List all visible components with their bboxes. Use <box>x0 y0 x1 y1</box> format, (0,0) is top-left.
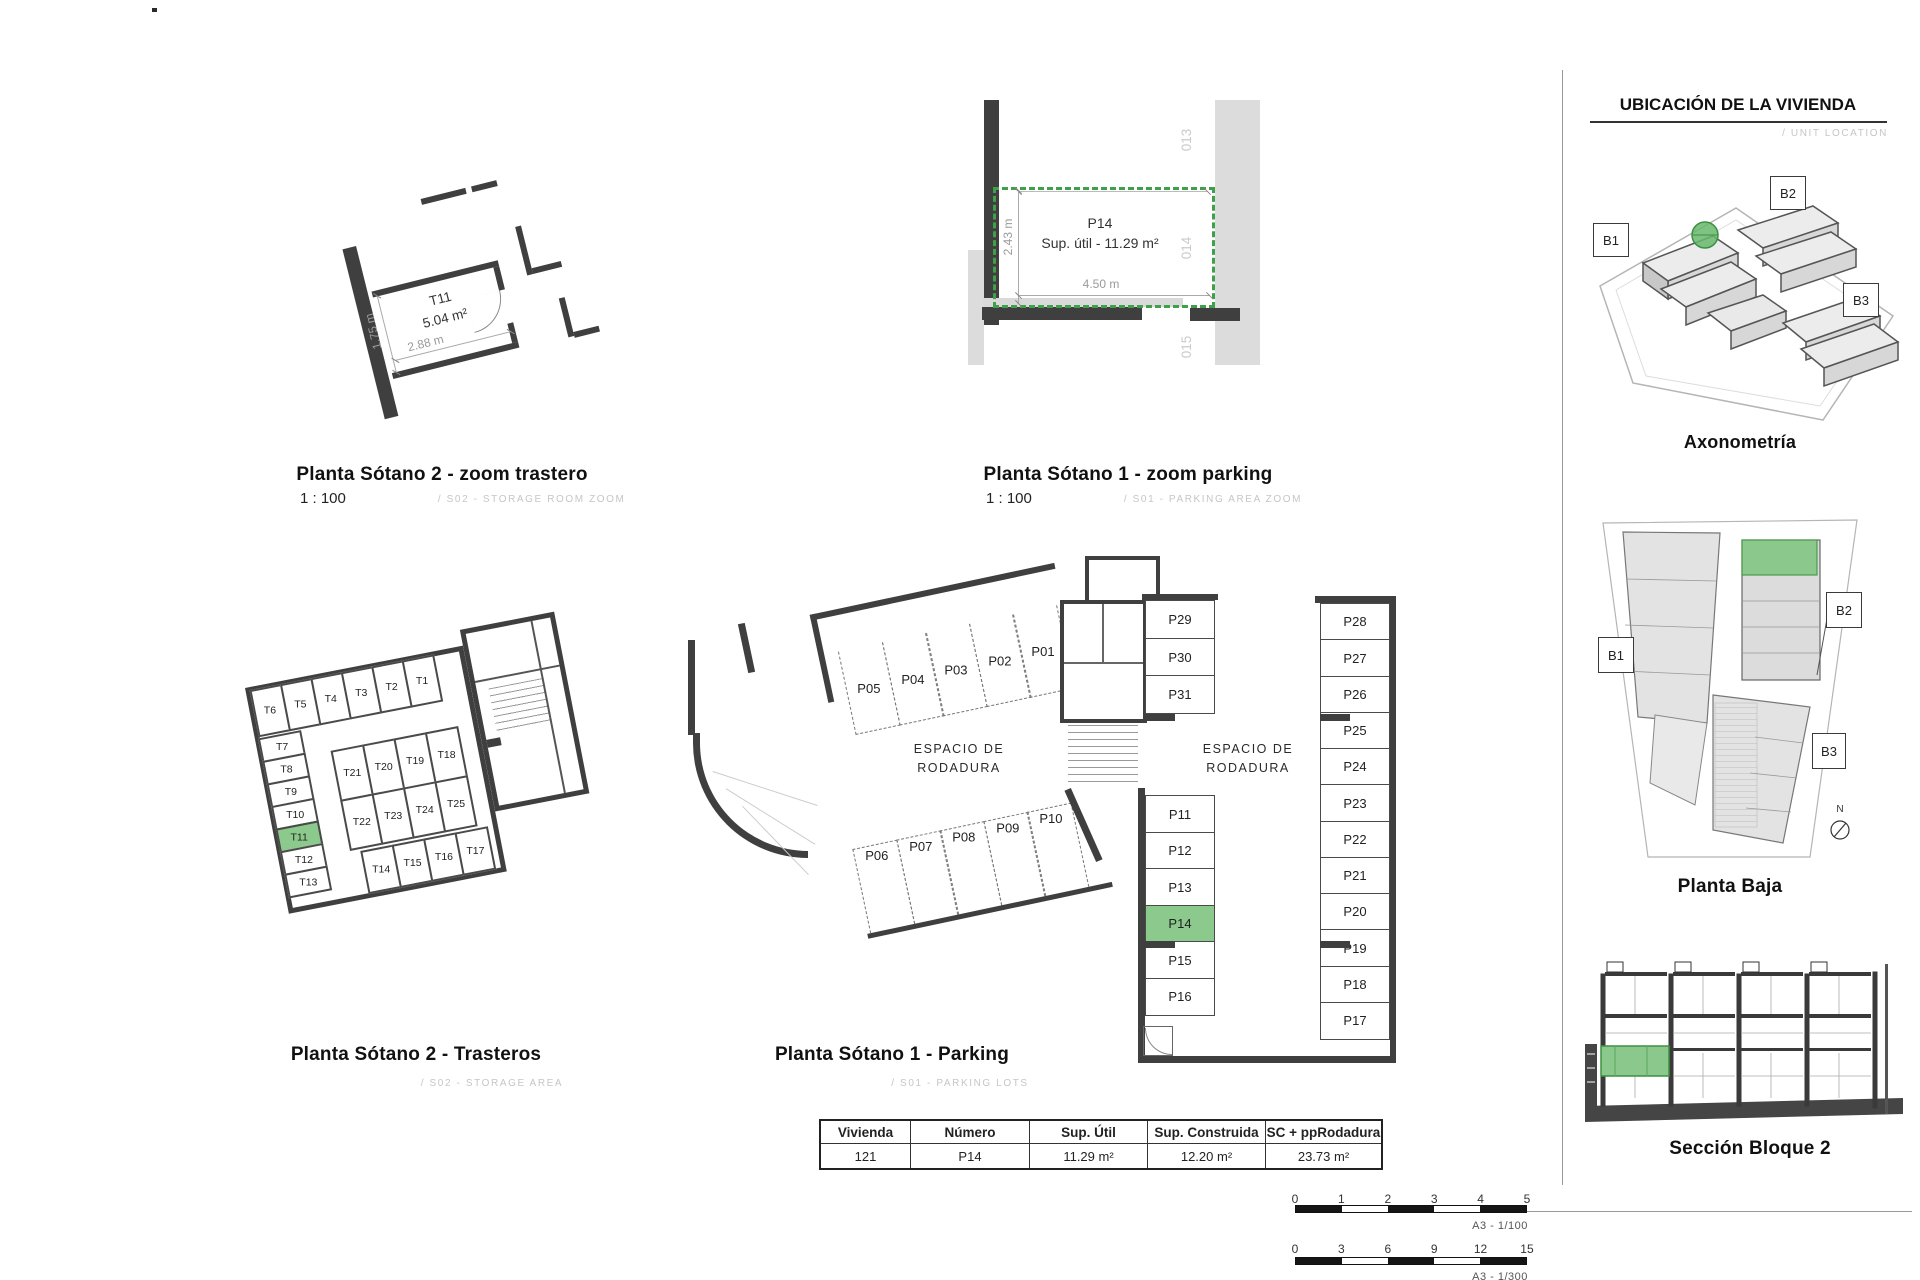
scalebar-segment <box>1296 1258 1342 1264</box>
door-room <box>1143 1026 1173 1056</box>
scalebar-segment <box>1342 1258 1388 1264</box>
detail-parking-caption: Planta Sótano 1 - zoom parking 1 : 100 /… <box>928 464 1328 507</box>
wall-segment <box>486 737 501 748</box>
scalebar-2-ticks: 03691215 <box>1283 1240 1539 1258</box>
location-header: UBICACIÓN DE LA VIVIENDA <box>1588 95 1888 115</box>
parking-stall: P28 <box>1320 603 1390 641</box>
table-header-row: ViviendaNúmeroSup. ÚtilSup. ConstruidaSC… <box>821 1121 1381 1144</box>
parking-stall: P20 <box>1320 893 1390 931</box>
adjacent-unit-label: 015 <box>1157 335 1217 359</box>
area-label: ESPACIO DE RODADURA <box>1178 740 1318 779</box>
table-value-cell: 23.73 m² <box>1265 1144 1381 1168</box>
block-label-b3: B3 <box>1843 283 1879 317</box>
stair-hatch <box>1068 725 1138 785</box>
scalebar-segment <box>1296 1206 1342 1212</box>
parking-stall: P19 <box>1320 929 1390 967</box>
detail-trastero-drawing: T11 5.04 m² 1.75 m 2.88 m <box>292 180 678 485</box>
parking-stall: P26 <box>1320 676 1390 714</box>
tick-number: 12 <box>1469 1240 1493 1258</box>
tick-number: 15 <box>1515 1240 1539 1258</box>
partition-line <box>475 665 560 683</box>
wall-segment <box>688 640 695 735</box>
wall-segment <box>738 623 755 673</box>
wall-segment <box>810 614 835 703</box>
space-area: Sup. útil - 11.29 m² <box>1015 233 1185 253</box>
drawing-sheet: T11 5.04 m² 1.75 m 2.88 m Planta Sótano … <box>0 0 1920 1280</box>
parking-col-inner-lower: P11P12P13P14P15P16 <box>1145 795 1215 1016</box>
tick-number: 0 <box>1283 1240 1307 1258</box>
plan-trasteros-title: Planta Sótano 2 - Trasteros <box>216 1044 616 1066</box>
scalebar-segment <box>1388 1258 1434 1264</box>
plan-trasteros-drawing: T6T5T4T3T2T1 T7T8T9T10T11T12T13 T21T20T1… <box>245 619 648 943</box>
block-label-b1: B1 <box>1593 223 1629 257</box>
wall-segment <box>1315 596 1396 603</box>
dim-width: 4.50 m <box>1071 277 1131 291</box>
tick-number: 9 <box>1422 1240 1446 1258</box>
wall-stub <box>1320 941 1350 948</box>
block-label-b2: B2 <box>1826 592 1862 628</box>
table-value-cell: 12.20 m² <box>1147 1144 1265 1168</box>
wall-stub <box>1320 714 1350 721</box>
wall-stub <box>1145 714 1175 721</box>
compass-n-label: N <box>1826 804 1854 815</box>
block-label-b1: B1 <box>1598 637 1634 673</box>
space-label: P14 Sup. útil - 11.29 m² <box>1015 213 1185 254</box>
parking-stall: P13 <box>1145 868 1215 906</box>
parking-stall: P23 <box>1320 784 1390 822</box>
wall-segment <box>1390 596 1396 1062</box>
parking-stall: P16 <box>1145 978 1215 1016</box>
location-header-sub: / UNIT LOCATION <box>1588 128 1888 139</box>
wall-segment <box>471 180 498 192</box>
detail-trastero-caption: Planta Sótano 2 - zoom trastero 1 : 100 … <box>242 464 642 507</box>
plan-trasteros-code: / S02 - STORAGE AREA <box>292 1078 692 1089</box>
detail-scale: 1 : 100 <box>300 490 346 507</box>
table-value-cell: 11.29 m² <box>1029 1144 1147 1168</box>
table-header-cell: Número <box>910 1121 1029 1144</box>
scalebar-segment <box>1480 1206 1526 1212</box>
detail-scale: 1 : 100 <box>986 490 1032 507</box>
extension-line <box>1018 191 1208 192</box>
wall-segment <box>559 297 574 337</box>
wall-segment <box>573 326 600 338</box>
parking-stall: P18 <box>1320 966 1390 1004</box>
table-header-cell: Sup. Útil <box>1029 1121 1147 1144</box>
scalebar-1-label: A3 - 1/100 <box>1430 1220 1570 1232</box>
parking-stall: P12 <box>1145 832 1215 870</box>
partition-line <box>1102 604 1104 664</box>
wall-segment <box>1138 1056 1396 1063</box>
area-label: ESPACIO DE RODADURA <box>889 740 1029 779</box>
space-id: P14 <box>1015 213 1185 233</box>
table-value-row: 121P1411.29 m²12.20 m²23.73 m² <box>821 1144 1381 1168</box>
parking-stall: P27 <box>1320 639 1390 677</box>
scalebar-2 <box>1295 1257 1527 1265</box>
corridor-band <box>1215 100 1260 365</box>
parking-col-right: P28P27P26P25P24P23P22P21P20P19P18P17 <box>1320 603 1390 1040</box>
table-value-cell: P14 <box>910 1144 1029 1168</box>
wall-segment <box>421 188 467 205</box>
section-title: Sección Bloque 2 <box>1585 1138 1915 1160</box>
parking-row-top: P05P04P03P02P01 <box>838 605 1075 735</box>
table-header-cell: Vivienda <box>821 1121 910 1144</box>
scalebar-2-label: A3 - 1/300 <box>1430 1271 1570 1280</box>
wall-segment <box>1190 308 1240 321</box>
table-header-cell: Sup. Construida <box>1147 1121 1265 1144</box>
scalebar-segment <box>1434 1206 1480 1212</box>
plan-parking-title: Planta Sótano 1 - Parking <box>692 1044 1092 1066</box>
corner-dot <box>152 8 157 12</box>
scalebar-extension-line <box>1527 1211 1912 1212</box>
adjacent-unit-label: 013 <box>1157 128 1217 152</box>
table-header-cell: SC + ppRodadura <box>1265 1121 1381 1144</box>
planta-baja-view <box>1595 515 1915 875</box>
wall-segment <box>532 261 563 274</box>
wall-stub <box>1145 941 1175 948</box>
parking-stall: P11 <box>1145 795 1215 833</box>
parking-stall: P17 <box>1320 1002 1390 1040</box>
planta-baja-title: Planta Baja <box>1580 876 1880 898</box>
scalebar-segment <box>1342 1206 1388 1212</box>
block-label-b3: B3 <box>1812 733 1846 769</box>
parking-stall: P21 <box>1320 857 1390 895</box>
detail-title: Planta Sótano 1 - zoom parking <box>928 464 1328 486</box>
block-label-b2: B2 <box>1770 176 1806 210</box>
door-arc <box>1145 1028 1172 1055</box>
summary-table: ViviendaNúmeroSup. ÚtilSup. ConstruidaSC… <box>819 1119 1383 1170</box>
parking-stall: P14 <box>1145 905 1215 943</box>
parking-stall: P29 <box>1145 600 1215 639</box>
parking-col-inner-upper: P29P30P31 <box>1145 600 1215 714</box>
detail-code: / S02 - STORAGE ROOM ZOOM <box>438 494 626 505</box>
partition-line <box>1064 662 1143 664</box>
wall-segment <box>515 226 533 276</box>
wall-segment <box>810 563 1056 621</box>
dimension-line <box>1018 191 1019 303</box>
plan-parking-drawing: P05P04P03P02P01 P06P07P08P09P10 ESPACIO … <box>640 548 1430 1093</box>
scalebar-segment <box>1480 1258 1526 1264</box>
wall-segment <box>1138 788 1145 1060</box>
parking-stall: P24 <box>1320 748 1390 786</box>
detail-parking-drawing: 013 014 015 P14 Sup. útil - 11.29 m² 2.4… <box>940 85 1290 375</box>
scalebar-1 <box>1295 1205 1527 1213</box>
parking-stall: P31 <box>1145 675 1215 714</box>
dimension-line <box>1018 295 1210 296</box>
scalebar-segment <box>1388 1206 1434 1212</box>
dim-depth: 2.43 m <box>1001 207 1015 267</box>
core-room <box>1060 600 1147 723</box>
axonometric-title: Axonometría <box>1590 432 1890 453</box>
detail-title: Planta Sótano 2 - zoom trastero <box>242 464 642 486</box>
table-value-cell: 121 <box>821 1144 910 1168</box>
tick-number: 3 <box>1329 1240 1353 1258</box>
wall-segment <box>982 307 1142 320</box>
panel-divider <box>1562 70 1563 1185</box>
tick-number: 6 <box>1376 1240 1400 1258</box>
section-view <box>1585 958 1920 1133</box>
parking-stall: P30 <box>1145 638 1215 677</box>
location-header-underline <box>1590 121 1887 123</box>
parking-stall: P22 <box>1320 821 1390 859</box>
plan-parking-code: / S01 - PARKING LOTS <box>760 1078 1160 1089</box>
detail-code: / S01 - PARKING AREA ZOOM <box>1124 494 1302 505</box>
scalebar-segment <box>1434 1258 1480 1264</box>
